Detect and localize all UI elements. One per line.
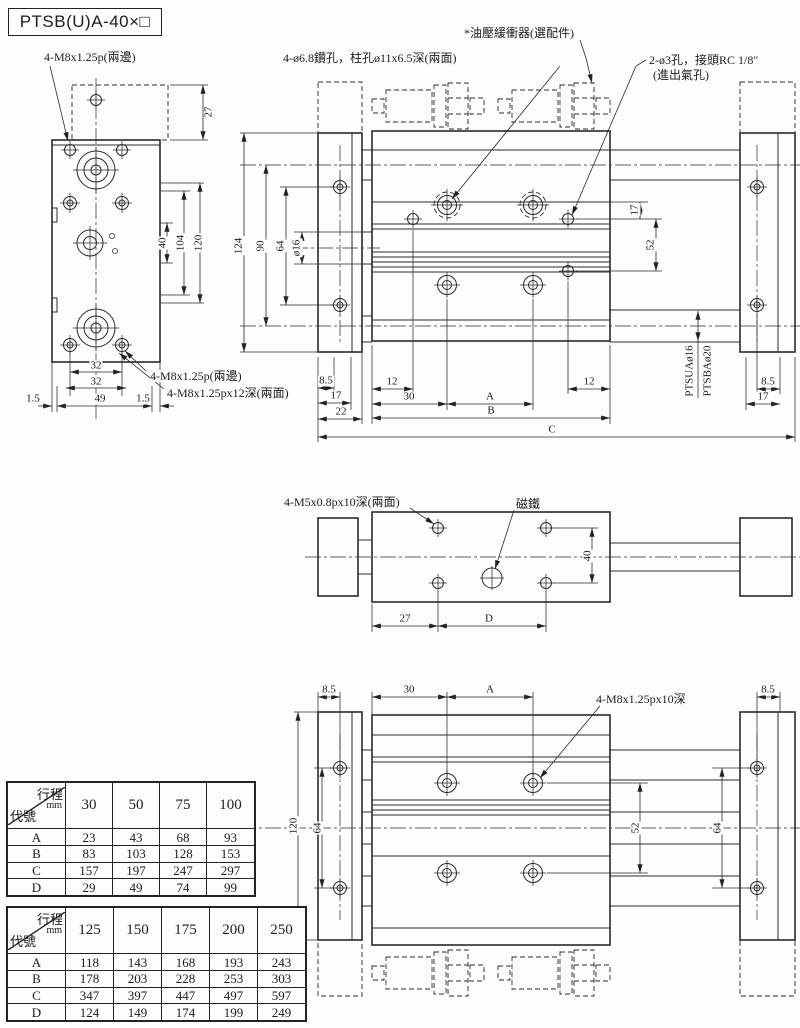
- cell: 149: [114, 1004, 162, 1021]
- dim-1-5-left: 1.5: [25, 394, 41, 405]
- cell: 157: [66, 862, 113, 879]
- cell: 197: [113, 862, 160, 879]
- col-header: 75: [160, 782, 207, 829]
- table-row: C 157 197 247 297: [7, 862, 255, 879]
- stroke-table-1: 行程 mm 代號 30 50 75 100 A 23 43 68 93 B 83…: [6, 781, 256, 897]
- col-header: 250: [258, 907, 307, 954]
- cell: 174: [162, 1004, 210, 1021]
- row-label: C: [7, 862, 66, 879]
- table-row: A 23 43 68 93: [7, 829, 255, 846]
- dim-8-5-right: 8.5: [760, 377, 776, 388]
- dim-12-left: 12: [386, 377, 399, 388]
- dim-8-5-bv-left: 8.5: [321, 685, 337, 696]
- table-corner-cell: 行程 mm 代號: [8, 912, 65, 950]
- table-row: C 347 397 447 497 597: [7, 987, 306, 1004]
- dim-D: D: [484, 614, 494, 625]
- col-header: 125: [66, 907, 114, 954]
- cell: 29: [66, 879, 113, 896]
- dim-40-top: 40: [583, 550, 594, 563]
- cell: 303: [258, 971, 307, 988]
- dim-30-bv: 30: [403, 685, 416, 696]
- dim-104: 104: [176, 234, 187, 253]
- cell: 247: [160, 862, 207, 879]
- cell: 253: [210, 971, 258, 988]
- cell: 199: [210, 1004, 258, 1021]
- corner-stroke-label: 行程: [37, 913, 63, 926]
- col-header: 50: [113, 782, 160, 829]
- cell: 93: [207, 829, 256, 846]
- note-thread-top-left: 4-M8x1.25p(兩邊): [44, 51, 136, 63]
- dim-A-front: A: [485, 392, 495, 403]
- cell: 118: [66, 954, 114, 971]
- note-thread-bottom-view: 4-M8x1.25px10深: [596, 693, 686, 705]
- cell: 128: [160, 846, 207, 863]
- drawing-page: PTSB(U)A-40×□ 4-M8x1.25p(兩邊) 4-ø6.8鑽孔，柱孔…: [0, 0, 800, 1028]
- cell: 99: [207, 879, 256, 896]
- cell: 68: [160, 829, 207, 846]
- table-row: A 118 143 168 193 243: [7, 954, 306, 971]
- dim-120-bv: 120: [289, 817, 300, 836]
- row-label: D: [7, 879, 66, 896]
- cell: 153: [207, 846, 256, 863]
- dim-C: C: [547, 425, 556, 436]
- rod-model-ptsua: PTSUAø16: [685, 344, 696, 397]
- table-row: D 124 149 174 199 249: [7, 1004, 306, 1021]
- cell: 23: [66, 829, 113, 846]
- table-corner-cell: 行程 mm 代號: [8, 787, 65, 825]
- cell: 103: [113, 846, 160, 863]
- dim-52-port: 52: [646, 239, 657, 252]
- cell: 497: [210, 987, 258, 1004]
- note-thread-bottom-1: 4-M8x1.25p(兩邊): [150, 370, 242, 382]
- cell: 193: [210, 954, 258, 971]
- dim-27-top: 27: [399, 614, 412, 625]
- dim-32-b: 32: [90, 377, 103, 388]
- dim-17-right: 17: [757, 392, 770, 403]
- row-label: A: [7, 829, 66, 846]
- dim-64-front: 64: [276, 240, 287, 253]
- dim-49: 49: [94, 394, 107, 405]
- cell: 297: [207, 862, 256, 879]
- col-header: 200: [210, 907, 258, 954]
- bottom-view: [240, 692, 800, 996]
- dim-30-front: 30: [403, 392, 416, 403]
- cell: 597: [258, 987, 307, 1004]
- dim-8-5-left: 8.5: [318, 376, 334, 387]
- corner-code-label: 代號: [10, 810, 36, 823]
- corner-unit-label: mm: [46, 801, 62, 811]
- cell: 74: [160, 879, 207, 896]
- note-thread-mid: 4-M5x0.8px10深(兩面): [284, 496, 400, 508]
- note-drill: 4-ø6.8鑽孔，柱孔ø11x6.5深(兩面): [283, 52, 457, 64]
- dim-52-bv: 52: [631, 822, 642, 835]
- cell: 124: [66, 1004, 114, 1021]
- dim-32-a: 32: [90, 361, 103, 372]
- table-row: D 29 49 74 99: [7, 879, 255, 896]
- note-air-port-1: 2-ø3孔，接頭RC 1/8": [649, 54, 758, 66]
- cell: 447: [162, 987, 210, 1004]
- table-row: B 178 203 228 253 303: [7, 971, 306, 988]
- rod-model-ptsba: PTSBAø20: [703, 345, 714, 398]
- cell: 168: [162, 954, 210, 971]
- note-magnet: 磁鐵: [516, 498, 540, 510]
- col-header: 175: [162, 907, 210, 954]
- table-row: B 83 103 128 153: [7, 846, 255, 863]
- row-label: B: [7, 846, 66, 863]
- corner-stroke-label: 行程: [37, 788, 63, 801]
- table-row: 行程 mm 代號 30 50 75 100: [7, 782, 255, 829]
- dim-22: 22: [335, 407, 348, 418]
- dim-8-5-bv-right: 8.5: [760, 685, 776, 696]
- dim-B: B: [486, 406, 495, 417]
- dim-90: 90: [256, 240, 267, 253]
- col-header: 100: [207, 782, 256, 829]
- dim-27: 27: [204, 106, 215, 119]
- cell: 228: [162, 971, 210, 988]
- col-header: 150: [114, 907, 162, 954]
- cell: 83: [66, 846, 113, 863]
- col-header: 30: [66, 782, 113, 829]
- cell: 143: [114, 954, 162, 971]
- cell: 178: [66, 971, 114, 988]
- cell: 347: [66, 987, 114, 1004]
- cell: 49: [113, 879, 160, 896]
- dim-40: 40: [158, 237, 169, 250]
- dim-120: 120: [194, 234, 205, 253]
- drawing-code-box: PTSB(U)A-40×□: [8, 8, 162, 36]
- dim-A-bv: A: [485, 685, 495, 696]
- dim-64-bv-right: 64: [713, 822, 724, 835]
- cell: 249: [258, 1004, 307, 1021]
- dim-rod-dia: ø16: [292, 239, 303, 258]
- dim-17-left: 17: [330, 391, 343, 402]
- cell: 203: [114, 971, 162, 988]
- dim-1-5-right: 1.5: [135, 394, 151, 405]
- corner-unit-label: mm: [46, 926, 62, 936]
- dim-64-bv-left: 64: [313, 822, 324, 835]
- cell: 243: [258, 954, 307, 971]
- note-thread-bottom-2: 4-M8x1.25px12深(兩面): [167, 387, 289, 399]
- note-air-port-2: (進出氣孔): [653, 69, 709, 81]
- row-label: C: [7, 987, 66, 1004]
- row-label: B: [7, 971, 66, 988]
- top-view: [305, 508, 800, 632]
- row-label: A: [7, 954, 66, 971]
- note-shock-absorber: *油壓緩衝器(選配件): [464, 27, 574, 39]
- row-label: D: [7, 1004, 66, 1021]
- table-row: 行程 mm 代號 125 150 175 200 250: [7, 907, 306, 954]
- dim-12-right: 12: [583, 377, 596, 388]
- stroke-table-2: 行程 mm 代號 125 150 175 200 250 A 118 143 1…: [6, 906, 307, 1022]
- cell: 397: [114, 987, 162, 1004]
- corner-code-label: 代號: [10, 935, 36, 948]
- dim-124: 124: [234, 237, 245, 256]
- dim-17-port: 17: [630, 204, 641, 217]
- cell: 43: [113, 829, 160, 846]
- drawing-code: PTSB(U)A-40×□: [20, 12, 151, 32]
